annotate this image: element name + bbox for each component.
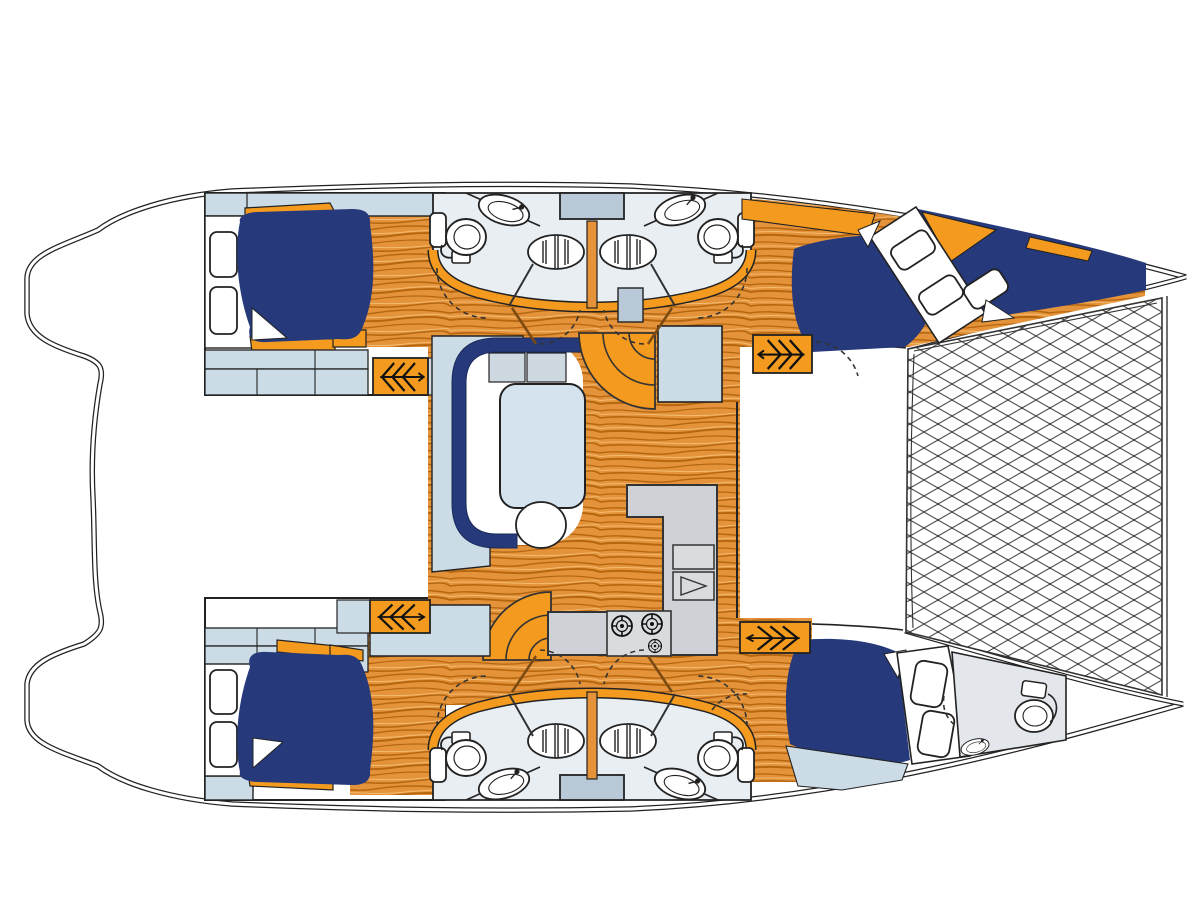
pouf-seat <box>516 502 566 548</box>
center-hatch <box>560 193 624 219</box>
trampoline-net <box>906 298 1162 695</box>
port-heads <box>430 189 754 308</box>
deck-hatch <box>210 287 237 334</box>
shower-grate <box>600 724 656 758</box>
trampoline <box>906 296 1167 697</box>
catamaran-floorplan <box>0 0 1200 900</box>
deck-hatch <box>916 710 955 759</box>
cabinet-row <box>205 369 368 395</box>
galley-sink-unit <box>673 545 714 569</box>
settee-cushion <box>489 353 525 382</box>
settee-cushion <box>527 353 566 382</box>
heads-divider-wall <box>587 692 597 779</box>
deck-hatch <box>210 232 237 277</box>
deck-hatch <box>210 722 237 767</box>
starboard-aft-cabin-furniture <box>205 600 373 800</box>
stove-burner <box>642 614 662 634</box>
nav-station <box>658 326 722 402</box>
shower-grate <box>528 724 584 758</box>
shower-grate <box>528 235 584 269</box>
deck-hatch <box>909 660 948 709</box>
double-berth <box>237 652 373 785</box>
floorplan-stage <box>0 0 1200 900</box>
toilet-tank <box>1021 680 1047 698</box>
salon-table <box>500 384 585 508</box>
stove-burner <box>649 640 662 653</box>
locker <box>337 600 370 633</box>
cabinet-row <box>205 350 368 369</box>
heads-divider-wall <box>587 221 597 308</box>
corridor-vanity <box>618 288 643 322</box>
stove-burner <box>612 616 632 636</box>
shower-grate <box>600 235 656 269</box>
starboard-heads <box>430 692 754 805</box>
deck-hatch <box>210 670 237 714</box>
